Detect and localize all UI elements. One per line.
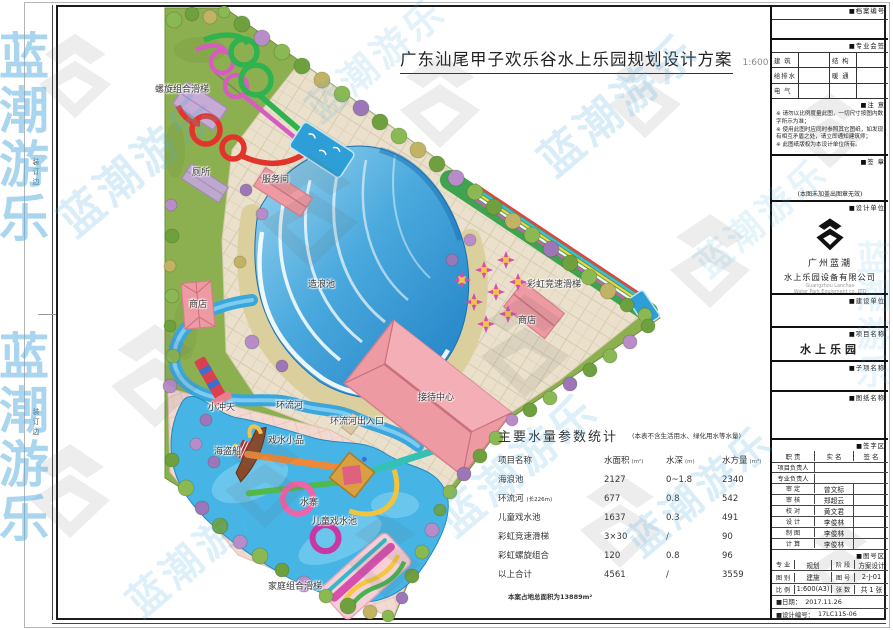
project-name: 水上乐园 (772, 341, 888, 362)
discipline-row: 电 气 (772, 84, 888, 99)
table-row: 以上合计4561/3559 (486, 568, 786, 580)
label-shop-right: 商店 (518, 313, 536, 326)
notice-label: ■注 意 (772, 99, 888, 111)
label-water-fort: 水寨 (300, 495, 318, 508)
label-spiral-slide: 螺旋组合滑梯 (155, 82, 209, 95)
sign-off-label: ■专业会签 (772, 40, 888, 53)
label-shop-left: 商店 (189, 297, 207, 310)
date-value: 2017.11.26 (805, 598, 842, 606)
drawing-title-text: 广东汕尾甲子欢乐谷水上乐园规划设计方案 (400, 46, 733, 74)
label-reception: 接待中心 (418, 390, 454, 403)
archive-no-label: ■档案编号 (772, 5, 888, 19)
meta-row: 图 别建施 图 号2-J-01 (772, 571, 888, 583)
drawing-name-value (772, 404, 888, 440)
col-depth: 水深(m) (666, 454, 722, 466)
company-name-cn2: 水上乐园设备有限公司 (772, 271, 888, 283)
label-lazy-river: 环流河 (276, 398, 303, 411)
label-service-room: 服务间 (262, 172, 289, 185)
signature-row: 项目负责人 (772, 463, 888, 474)
design-no-value: 17LC115-06 (818, 610, 857, 618)
stats-header: 项目名称 水面积(m²) 水深(m) 水方量(m³) (486, 454, 786, 466)
design-no-row: ■设计编号： 17LC115-06 (772, 609, 888, 620)
stats-footer: 本案占地总面积为13889m² (508, 591, 786, 601)
drawing-sheet: 装订边 装订边 广东汕尾甲子欢乐谷水上乐园规划设计方案 1:600 (0, 0, 893, 630)
subproject-label: ■子项名称 (772, 362, 888, 374)
seal-label: ■签 章 (772, 156, 888, 168)
col-name: 项目名称 (486, 454, 604, 466)
number-area-label: ■图号区 (772, 550, 888, 559)
drawing-name-label: ■图纸名称 (772, 392, 888, 404)
label-water-features: 戏水小品 (268, 433, 304, 446)
drawing-scale: 1:600 (743, 58, 769, 68)
signature-row: 审 定曾文标 (772, 484, 888, 495)
project-label: ■项目名称 (772, 328, 888, 340)
stats-title: 主要水量参数统计 (498, 426, 618, 445)
title-block: ■档案编号 ■专业会签 建 筑 结 构 给排水 暖 通 电 气 ■注 意 ※ 请… (770, 5, 888, 620)
signature-row: 专业负责人 (772, 473, 888, 484)
signature-header: 职 责实 名签 名 (772, 450, 888, 462)
table-row: 海浪池21270~1.82340 (486, 473, 786, 485)
design-unit-block: 广州蓝潮 水上乐园设备有限公司 Guangzhou Lanchao Water … (772, 215, 888, 295)
discipline-row: 给排水 暖 通 (772, 68, 888, 83)
seal-space (772, 168, 888, 189)
stats-note: (本表不含生活用水、绿化用水等水量) (632, 430, 741, 440)
seal-note: (本图未加盖出图章无效) (772, 189, 888, 202)
notice-notes: ※ 请勿以比例度量此图，一切尺寸按图内数字所示为准； ※ 使用此图时应同时参照其… (772, 110, 888, 156)
company-name-cn1: 广州蓝潮 (772, 256, 888, 269)
dimension-tick (38, 314, 56, 315)
lanchao-logo-icon (813, 217, 847, 251)
subproject-value (772, 374, 888, 391)
signature-area-label: ■签字区 (772, 440, 888, 450)
client-label: ■建设单位 (772, 295, 888, 307)
label-lazy-river-entrance: 环流河出入口 (330, 414, 384, 427)
label-rainbow-slide: 彩虹竞速滑梯 (527, 277, 581, 290)
signature-row: 计 算李俊林 (772, 539, 888, 550)
binding-edge-label: 装订边 (31, 158, 41, 188)
water-stats-table: 主要水量参数统计 (本表不含生活用水、绿化用水等水量) 项目名称 水面积(m²)… (486, 426, 786, 601)
design-no-label: ■设计编号： (776, 610, 814, 619)
signature-row: 制 图李俊林 (772, 528, 888, 539)
company-name-en1: Guangzhou Lanchao (772, 284, 888, 289)
label-wave-pool: 造浪池 (308, 277, 335, 290)
label-kids-pool: 儿童戏水池 (312, 514, 357, 527)
label-family-slide: 家庭组合滑梯 (268, 579, 322, 592)
date-row: ■日期： 2017.11.26 (772, 596, 888, 608)
label-mini-tower: 小冲天 (208, 400, 235, 413)
meta-row: 专 业规划 阶 段方案设计 (772, 559, 888, 571)
table-row: 彩虹竞速滑梯3×30/90 (486, 530, 786, 542)
table-row: 儿童戏水池16370.3491 (486, 511, 786, 523)
label-pirate-ship: 海盗船 (214, 444, 241, 457)
design-unit-label: ■设计单位 (772, 202, 888, 214)
meta-row: 比 例1:600(A3) 张 数共 1 张 (772, 584, 888, 596)
binding-edge-label: 装订边 (31, 408, 41, 438)
binding-edge-line (52, 5, 53, 620)
bottom-border-line (52, 623, 886, 624)
signature-row: 校 对黄文君 (772, 506, 888, 517)
table-row: 彩虹螺旋组合1200.896 (486, 549, 786, 561)
table-row: 环流河(长226m) 6770.8542 (486, 492, 786, 504)
date-label: ■日期： (776, 597, 801, 606)
discipline-row: 建 筑 结 构 (772, 53, 888, 68)
client-value (772, 307, 888, 328)
col-area: 水面积(m²) (604, 454, 666, 466)
signature-row: 设 计李俊林 (772, 517, 888, 528)
archive-no-value (772, 20, 888, 39)
label-toilet: 厕所 (192, 165, 210, 178)
drawing-title: 广东汕尾甲子欢乐谷水上乐园规划设计方案 1:600 (400, 46, 768, 74)
signature-row: 审 核郑超云 (772, 495, 888, 506)
